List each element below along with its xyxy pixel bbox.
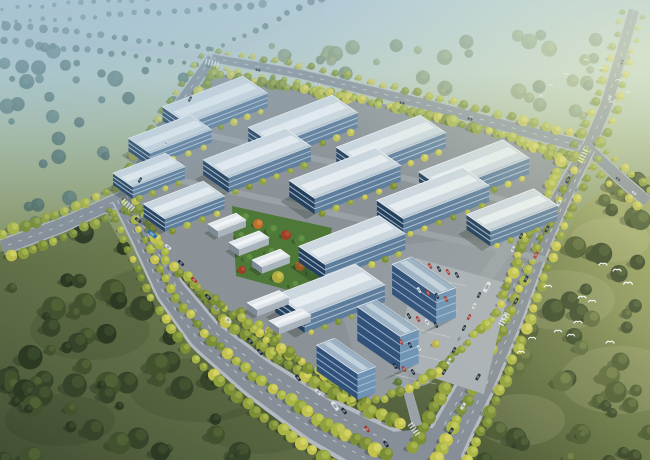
rendering-canvas (0, 0, 650, 460)
aerial-industrial-park-rendering (0, 0, 650, 460)
